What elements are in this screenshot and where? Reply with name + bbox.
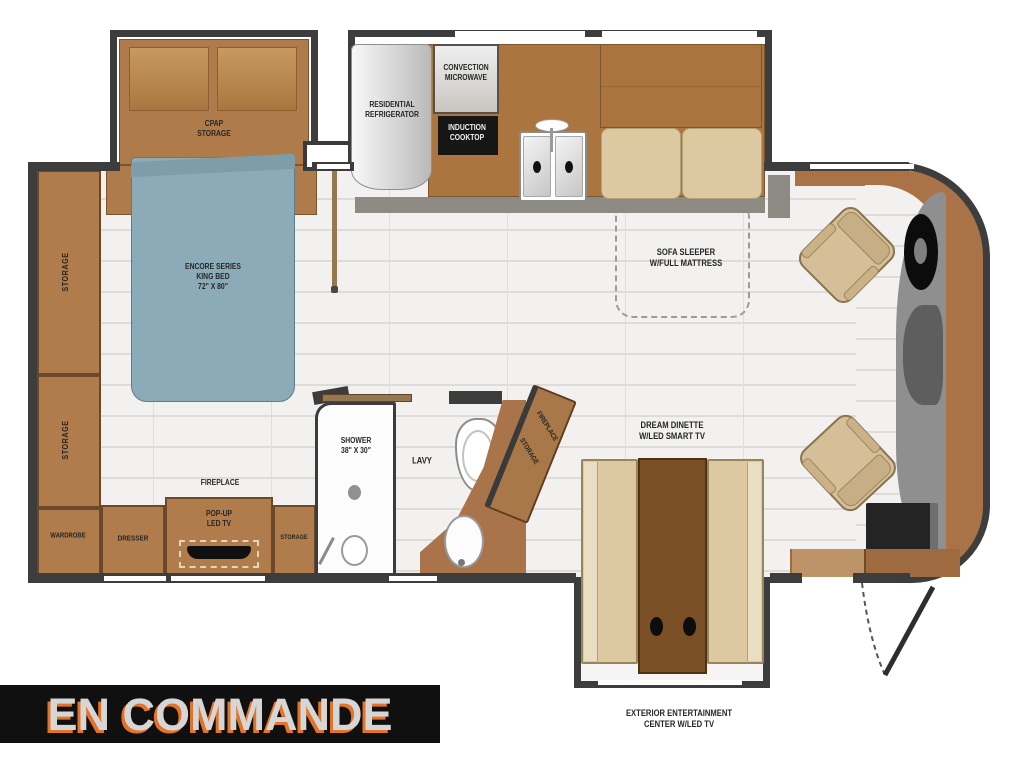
window-bottom-1	[104, 576, 166, 581]
label-shower: SHOWER38" X 30"	[341, 436, 372, 456]
label-storage-upper: STORAGE	[61, 252, 71, 291]
window-dinette-slide	[598, 680, 742, 685]
label-microwave: CONVECTIONMICROWAVE	[443, 63, 488, 83]
bed-rail-right	[293, 165, 317, 215]
sink-drain-left	[533, 161, 541, 173]
sink-drain-right	[565, 161, 573, 173]
status-banner-text: EN COMMANDE	[48, 692, 393, 737]
speaker-right-icon	[683, 617, 696, 636]
sofa-back-seam	[601, 86, 761, 87]
sofa-cushion-left	[601, 128, 681, 199]
window-slide-2	[602, 31, 757, 37]
wall-top-left	[28, 162, 120, 171]
lav-faucet-dot	[458, 559, 465, 566]
label-refrigerator: RESIDENTIALREFRIGERATOR	[365, 100, 419, 120]
label-dream-dinette: DREAM DINETTEW/LED SMART TV	[639, 420, 705, 443]
label-fireplace: FIREPLACE	[201, 478, 240, 488]
engine-hump	[903, 305, 943, 405]
label-storage-small: STORAGE	[280, 534, 307, 542]
label-cooktop: INDUCTIONCOOKTOP	[448, 123, 486, 143]
window-bottom-2	[171, 576, 265, 581]
cabinet-gray-box	[768, 175, 790, 218]
shower-head-icon	[341, 535, 368, 566]
window-top-right	[810, 164, 914, 169]
label-storage-lower: STORAGE	[61, 420, 71, 459]
dinette-table	[638, 458, 707, 674]
dash-console	[866, 503, 938, 551]
label-lavy: LAVY	[412, 455, 432, 466]
partition-door-stop	[331, 286, 338, 293]
towel-bar	[322, 394, 412, 402]
label-sofa-sleeper: SOFA SLEEPERW/FULL MATTRESS	[650, 247, 722, 270]
shower-drain	[348, 485, 361, 500]
popup-tv-icon	[187, 546, 251, 559]
steering-wheel-hub	[914, 238, 927, 264]
toilet-wall-stub	[449, 391, 502, 404]
label-popup-tv: POP-UPLED TV	[206, 509, 232, 529]
label-wardrobe: WARDROBE	[50, 533, 85, 542]
label-exterior-entertainment: EXTERIOR ENTERTAINMENTCENTER W/LED TV	[626, 708, 732, 731]
bed-rail-left	[106, 165, 132, 215]
dash-trim-strip	[795, 171, 865, 186]
label-dresser: DRESSER	[118, 533, 149, 542]
label-king-bed: ENCORE SERIESKING BED72" X 80"	[185, 262, 241, 292]
speaker-left-icon	[650, 617, 663, 636]
faucet-stem	[550, 128, 553, 152]
rv-floorplan: CPAPSTORAGE ENCORE SERIESKING BED72" X 8…	[0, 0, 1024, 768]
window-slide-1	[455, 31, 585, 37]
pillow-left	[129, 47, 209, 111]
dinette-bench-left-cushion	[584, 462, 598, 661]
partition-wall	[332, 171, 337, 289]
pillow-right	[217, 47, 297, 111]
status-banner: EN COMMANDE	[0, 685, 440, 743]
window-bottom-3	[389, 576, 437, 581]
wardrobe-cabinet	[37, 508, 101, 576]
label-cpap-storage: CPAPSTORAGE	[197, 119, 231, 139]
wall-left	[28, 162, 37, 583]
sofa-cushion-right	[682, 128, 762, 199]
window-top-mid	[317, 164, 350, 169]
entry-door-swing	[770, 560, 980, 690]
dinette-bench-right-cushion	[747, 462, 761, 661]
